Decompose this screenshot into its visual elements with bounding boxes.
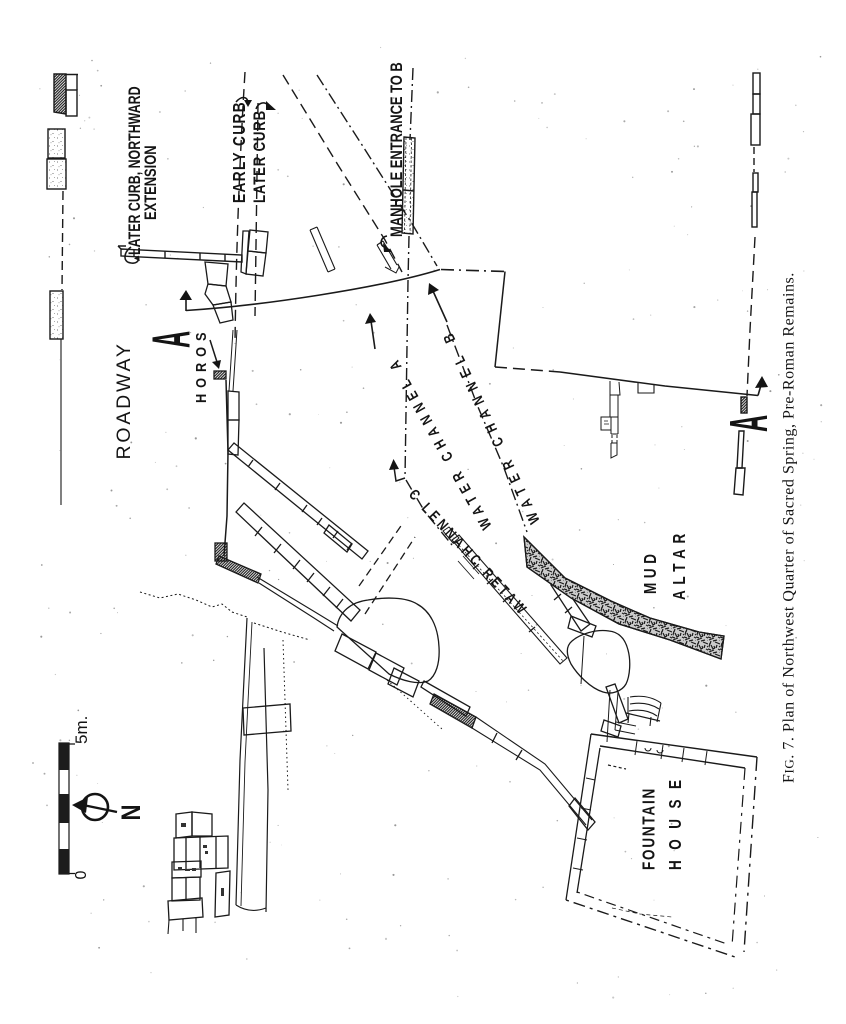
svg-text:FOUNTAIN: FOUNTAIN — [640, 787, 659, 870]
svg-text:ROADWAY: ROADWAY — [113, 341, 135, 459]
svg-text:EXTENSION: EXTENSION — [141, 145, 160, 220]
svg-text:FIG. 7. Plan of Northwest Quar: FIG. 7. Plan of Northwest Quarter of Sac… — [781, 272, 798, 783]
svg-text:MANHOLE ENTRANCE TO B: MANHOLE ENTRANCE TO B — [387, 62, 406, 237]
svg-text:HOUSE: HOUSE — [666, 770, 685, 870]
svg-text:A: A — [718, 415, 779, 432]
svg-text:HOROS: HOROS — [192, 327, 209, 403]
svg-text:ALTAR: ALTAR — [670, 528, 689, 600]
svg-text:5m.: 5m. — [72, 716, 91, 744]
svg-text:0: 0 — [73, 871, 90, 880]
svg-text:EARLY CURB: EARLY CURB — [231, 101, 250, 203]
svg-text:N: N — [117, 805, 147, 821]
svg-text:LATER CURB: LATER CURB — [251, 110, 270, 203]
svg-text:MUD: MUD — [641, 549, 660, 594]
